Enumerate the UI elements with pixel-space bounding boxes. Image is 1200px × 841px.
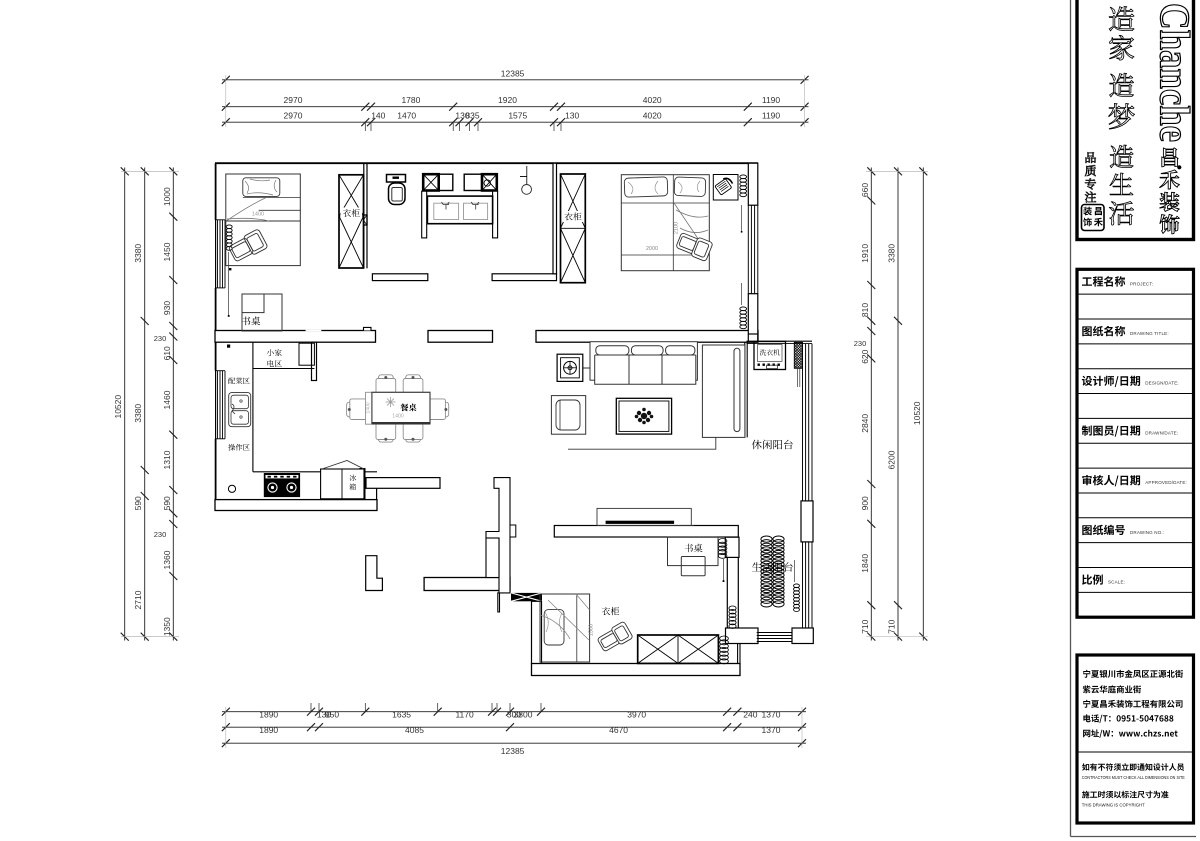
svg-text:1635: 1635 [392,710,411,720]
svg-text:1920: 1920 [498,95,517,105]
svg-text:1470: 1470 [397,111,416,121]
svg-text:Chanche: Chanche [1151,3,1197,142]
svg-text:1400: 1400 [392,414,404,420]
svg-text:THIS DRAWING IS COPYRIGHT: THIS DRAWING IS COPYRIGHT [1082,802,1145,807]
svg-text:2840: 2840 [860,414,870,433]
svg-text:12385: 12385 [501,68,525,78]
svg-text:3970: 3970 [627,710,646,720]
svg-text:710: 710 [887,619,897,633]
svg-text:1370: 1370 [762,710,781,720]
svg-text:230: 230 [154,530,167,539]
svg-text:3380: 3380 [887,244,897,263]
svg-text:610: 610 [162,346,172,360]
svg-text:950: 950 [325,710,339,720]
svg-text:1575: 1575 [508,111,527,121]
svg-text:DRAWING NO.:: DRAWING NO.: [1130,530,1164,535]
svg-text:1890: 1890 [259,725,278,735]
svg-text:DRAWN/DATE:: DRAWN/DATE: [1145,430,1178,435]
svg-text:12385: 12385 [501,746,525,756]
svg-text:1000: 1000 [162,187,172,206]
svg-text:4085: 4085 [405,725,424,735]
svg-text:590: 590 [162,496,172,510]
svg-text:835: 835 [465,111,479,121]
svg-text:240: 240 [743,710,757,720]
svg-text:1400: 1400 [252,212,264,218]
svg-text:140: 140 [371,111,385,121]
svg-text:1370: 1370 [762,725,781,735]
svg-text:1360: 1360 [162,550,172,569]
svg-text:CONTRACTORS MUST CHECK ALL DIM: CONTRACTORS MUST CHECK ALL DIMENSIONS ON… [1082,775,1185,780]
svg-text:PROJECT:: PROJECT: [1130,281,1153,286]
svg-text:2710: 2710 [133,590,143,609]
svg-text:1400: 1400 [365,402,371,413]
svg-text:1500: 1500 [589,624,595,636]
svg-text:2970: 2970 [284,95,303,105]
svg-text:1310: 1310 [162,450,172,469]
svg-text:2100: 2100 [674,222,680,234]
svg-text:4020: 4020 [643,111,662,121]
svg-text:230: 230 [154,334,167,343]
svg-text:900: 900 [860,496,870,510]
svg-text:1190: 1190 [762,95,781,105]
svg-text:DESIGN/DATE:: DESIGN/DATE: [1145,381,1179,386]
svg-text:4020: 4020 [643,95,662,105]
svg-text:930: 930 [162,301,172,315]
svg-text:1780: 1780 [401,95,420,105]
svg-text:6200: 6200 [887,450,897,469]
svg-text:3800: 3800 [514,710,533,720]
svg-text:2970: 2970 [284,111,303,121]
svg-text:3380: 3380 [133,244,143,263]
svg-text:SCALE:: SCALE: [1108,579,1125,584]
svg-text:130: 130 [565,111,579,121]
svg-text:1910: 1910 [860,244,870,263]
svg-text:4670: 4670 [609,725,628,735]
svg-text:590: 590 [133,496,143,510]
svg-text:710: 710 [860,619,870,633]
svg-text:2000: 2000 [646,246,658,252]
svg-text:10520: 10520 [912,401,922,425]
svg-text:660: 660 [860,183,870,197]
svg-text:1450: 1450 [162,242,172,261]
svg-text:DRAWING TITLE:: DRAWING TITLE: [1130,331,1169,336]
svg-text:810: 810 [860,303,870,317]
svg-text:1350: 1350 [162,617,172,636]
svg-text:620: 620 [860,349,870,363]
svg-text:230: 230 [854,339,867,348]
svg-text:1890: 1890 [259,710,278,720]
svg-text:3380: 3380 [133,404,143,423]
svg-text:APPROVED/DATE:: APPROVED/DATE: [1145,480,1187,485]
svg-text:1190: 1190 [762,111,781,121]
svg-text:1460: 1460 [162,390,172,409]
svg-text:10520: 10520 [113,395,123,419]
svg-text:1170: 1170 [455,710,474,720]
svg-text:1840: 1840 [860,554,870,573]
